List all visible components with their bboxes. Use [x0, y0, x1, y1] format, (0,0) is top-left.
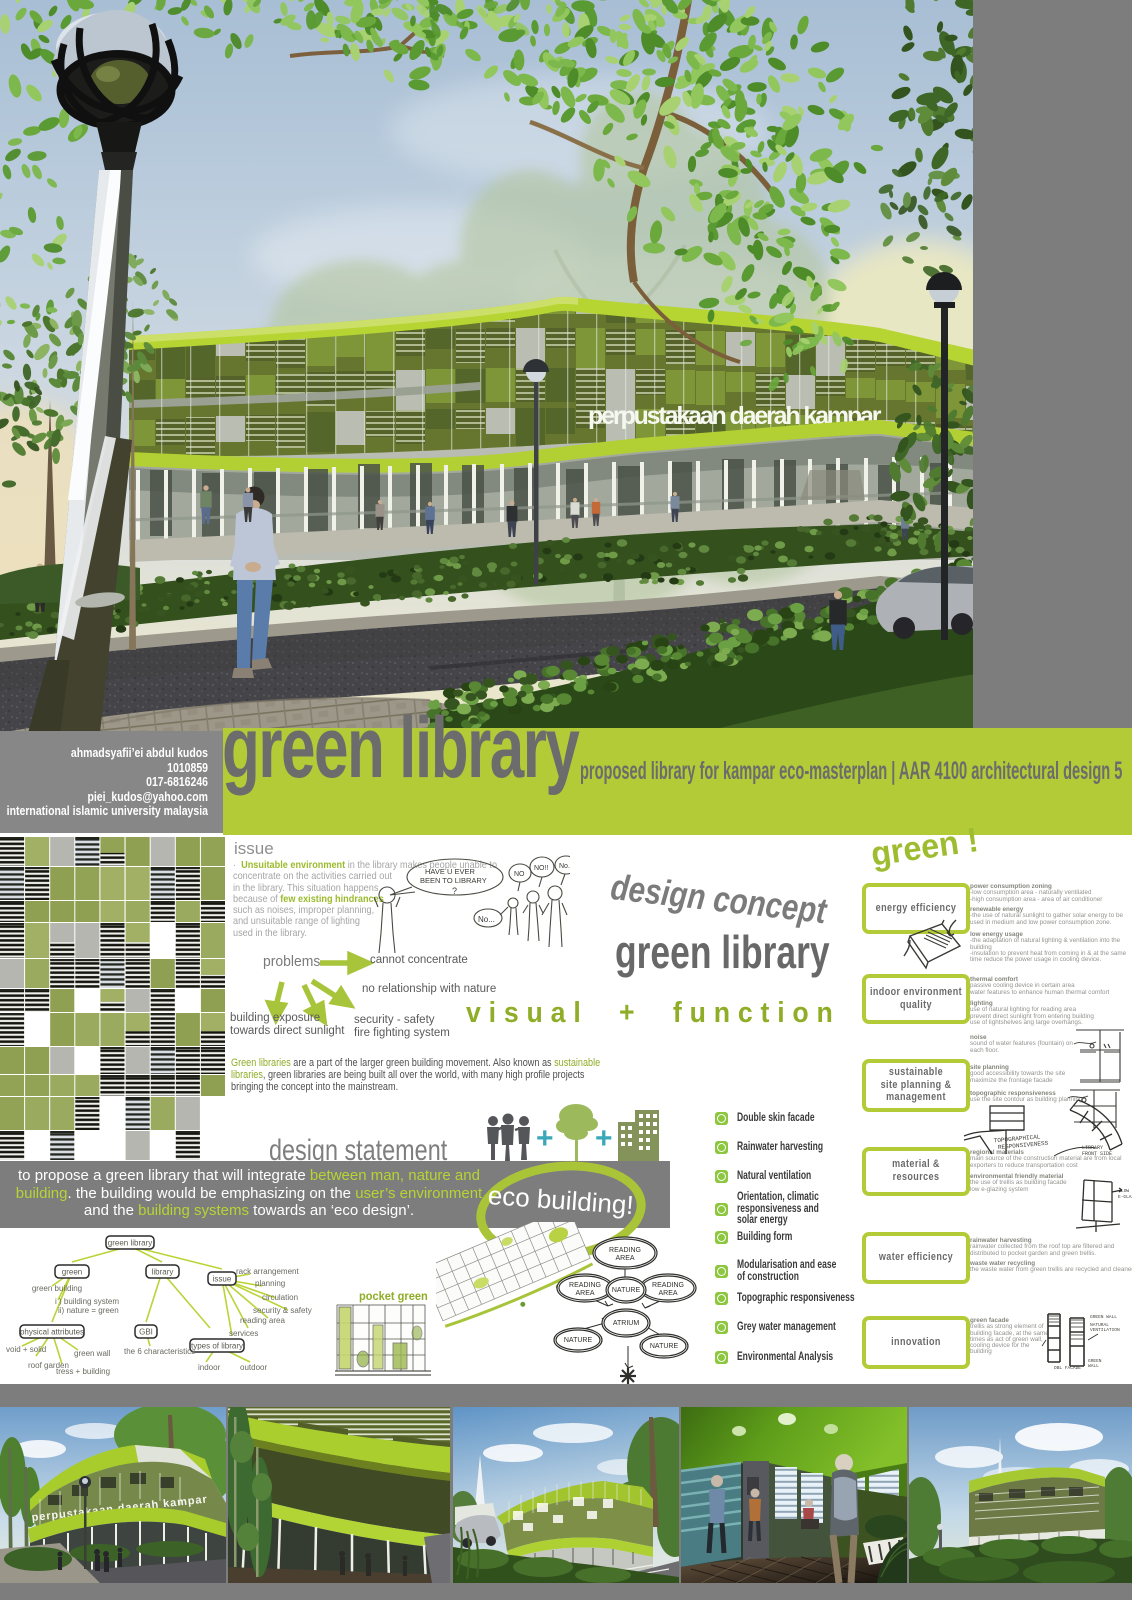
svg-text:planning: planning [255, 1279, 285, 1288]
svg-text:green library: green library [108, 1239, 152, 1248]
svg-text:circulation: circulation [262, 1293, 298, 1302]
svg-text:outdoor: outdoor [240, 1363, 267, 1372]
svg-text:NO!!: NO!! [534, 865, 548, 872]
svg-text:WALL: WALL [1088, 1363, 1099, 1369]
svg-text:i ) building system: i ) building system [55, 1297, 119, 1306]
svg-text:?: ? [452, 886, 457, 896]
svg-text:+: + [595, 1122, 613, 1155]
svg-text:rack arrangement: rack arrangement [236, 1267, 299, 1276]
svg-text:GBI: GBI [139, 1328, 153, 1337]
svg-text:tress + building: tress + building [56, 1367, 110, 1376]
svg-text:NATURE: NATURE [612, 1287, 641, 1294]
svg-text:E-GLASS: E-GLASS [1118, 1194, 1132, 1200]
svg-text:READING: READING [652, 1282, 684, 1289]
svg-text:AREA: AREA [615, 1255, 634, 1262]
svg-text:NATURE: NATURE [650, 1343, 679, 1350]
svg-text:NATURE: NATURE [564, 1337, 593, 1344]
svg-text:library: library [152, 1268, 174, 1277]
svg-text:No..: No.. [559, 863, 570, 870]
svg-text:VENTILATION: VENTILATION [1090, 1327, 1120, 1333]
svg-text:READING: READING [569, 1282, 601, 1289]
svg-text:green wall: green wall [74, 1349, 111, 1358]
svg-text:HAVE U EVER: HAVE U EVER [425, 867, 475, 876]
svg-text:BEEN TO LIBRARY: BEEN TO LIBRARY [420, 876, 487, 885]
svg-text:ATRIUM: ATRIUM [613, 1320, 639, 1327]
svg-text:reading area: reading area [240, 1316, 285, 1325]
svg-text:indoor: indoor [198, 1363, 221, 1372]
svg-text:AREA: AREA [658, 1290, 677, 1297]
svg-text:AREA: AREA [575, 1290, 594, 1297]
svg-text:ii) nature = green: ii) nature = green [58, 1306, 119, 1315]
svg-text:types of library: types of library [191, 1342, 243, 1351]
svg-text:READING: READING [609, 1247, 641, 1254]
svg-text:No...: No... [478, 915, 495, 924]
svg-text:void + solid: void + solid [6, 1345, 46, 1354]
svg-text:issue: issue [213, 1275, 232, 1284]
svg-text:physical attributes: physical attributes [20, 1328, 84, 1337]
svg-text:GREEN WALL: GREEN WALL [1090, 1314, 1117, 1320]
svg-text:LOW: LOW [1121, 1188, 1129, 1194]
svg-text:green: green [62, 1268, 82, 1277]
svg-text:green building: green building [32, 1284, 82, 1293]
svg-text:+: + [536, 1122, 554, 1155]
svg-text:NO: NO [514, 871, 525, 878]
svg-text:the 6 characteristics: the 6 characteristics [124, 1347, 195, 1356]
svg-text:security & safety: security & safety [253, 1306, 312, 1315]
svg-text:services: services [229, 1329, 258, 1338]
svg-text:DBL FACADE: DBL FACADE [1054, 1365, 1081, 1371]
